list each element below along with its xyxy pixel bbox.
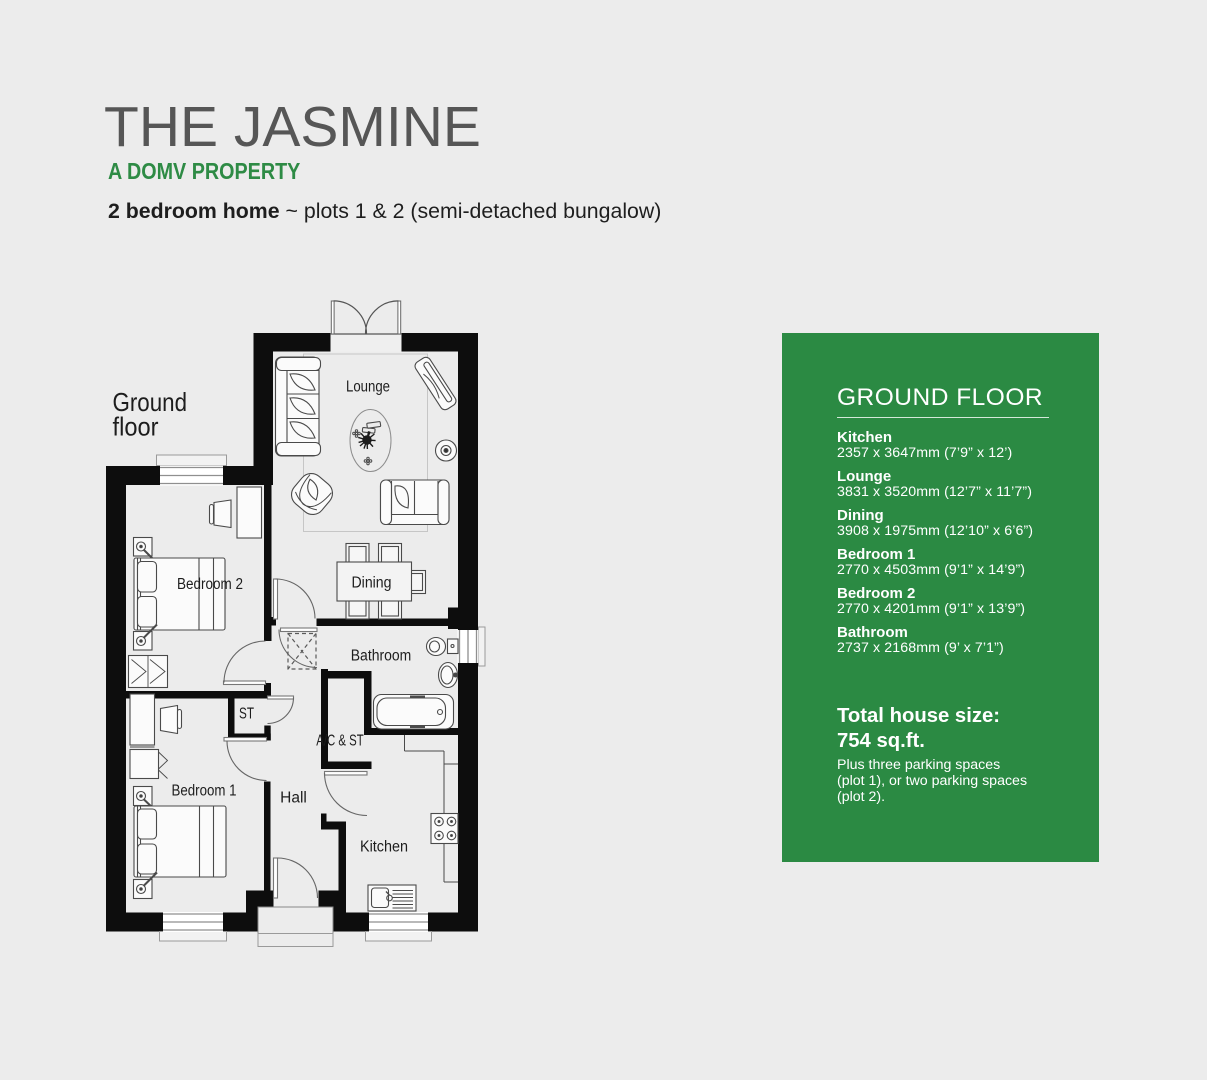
svg-text:A/C & ST: A/C & ST (316, 733, 364, 750)
svg-text:floor: floor (113, 412, 159, 442)
svg-text:Bathroom: Bathroom (351, 648, 412, 665)
svg-text:Lounge: Lounge (346, 379, 390, 396)
svg-text:Bedroom 1: Bedroom 1 (172, 783, 237, 800)
svg-text:Hall: Hall (280, 790, 307, 807)
svg-text:ST: ST (239, 706, 254, 723)
svg-text:Dining: Dining (352, 575, 392, 592)
svg-text:Kitchen: Kitchen (360, 839, 408, 856)
svg-text:Bedroom 2: Bedroom 2 (177, 576, 243, 593)
